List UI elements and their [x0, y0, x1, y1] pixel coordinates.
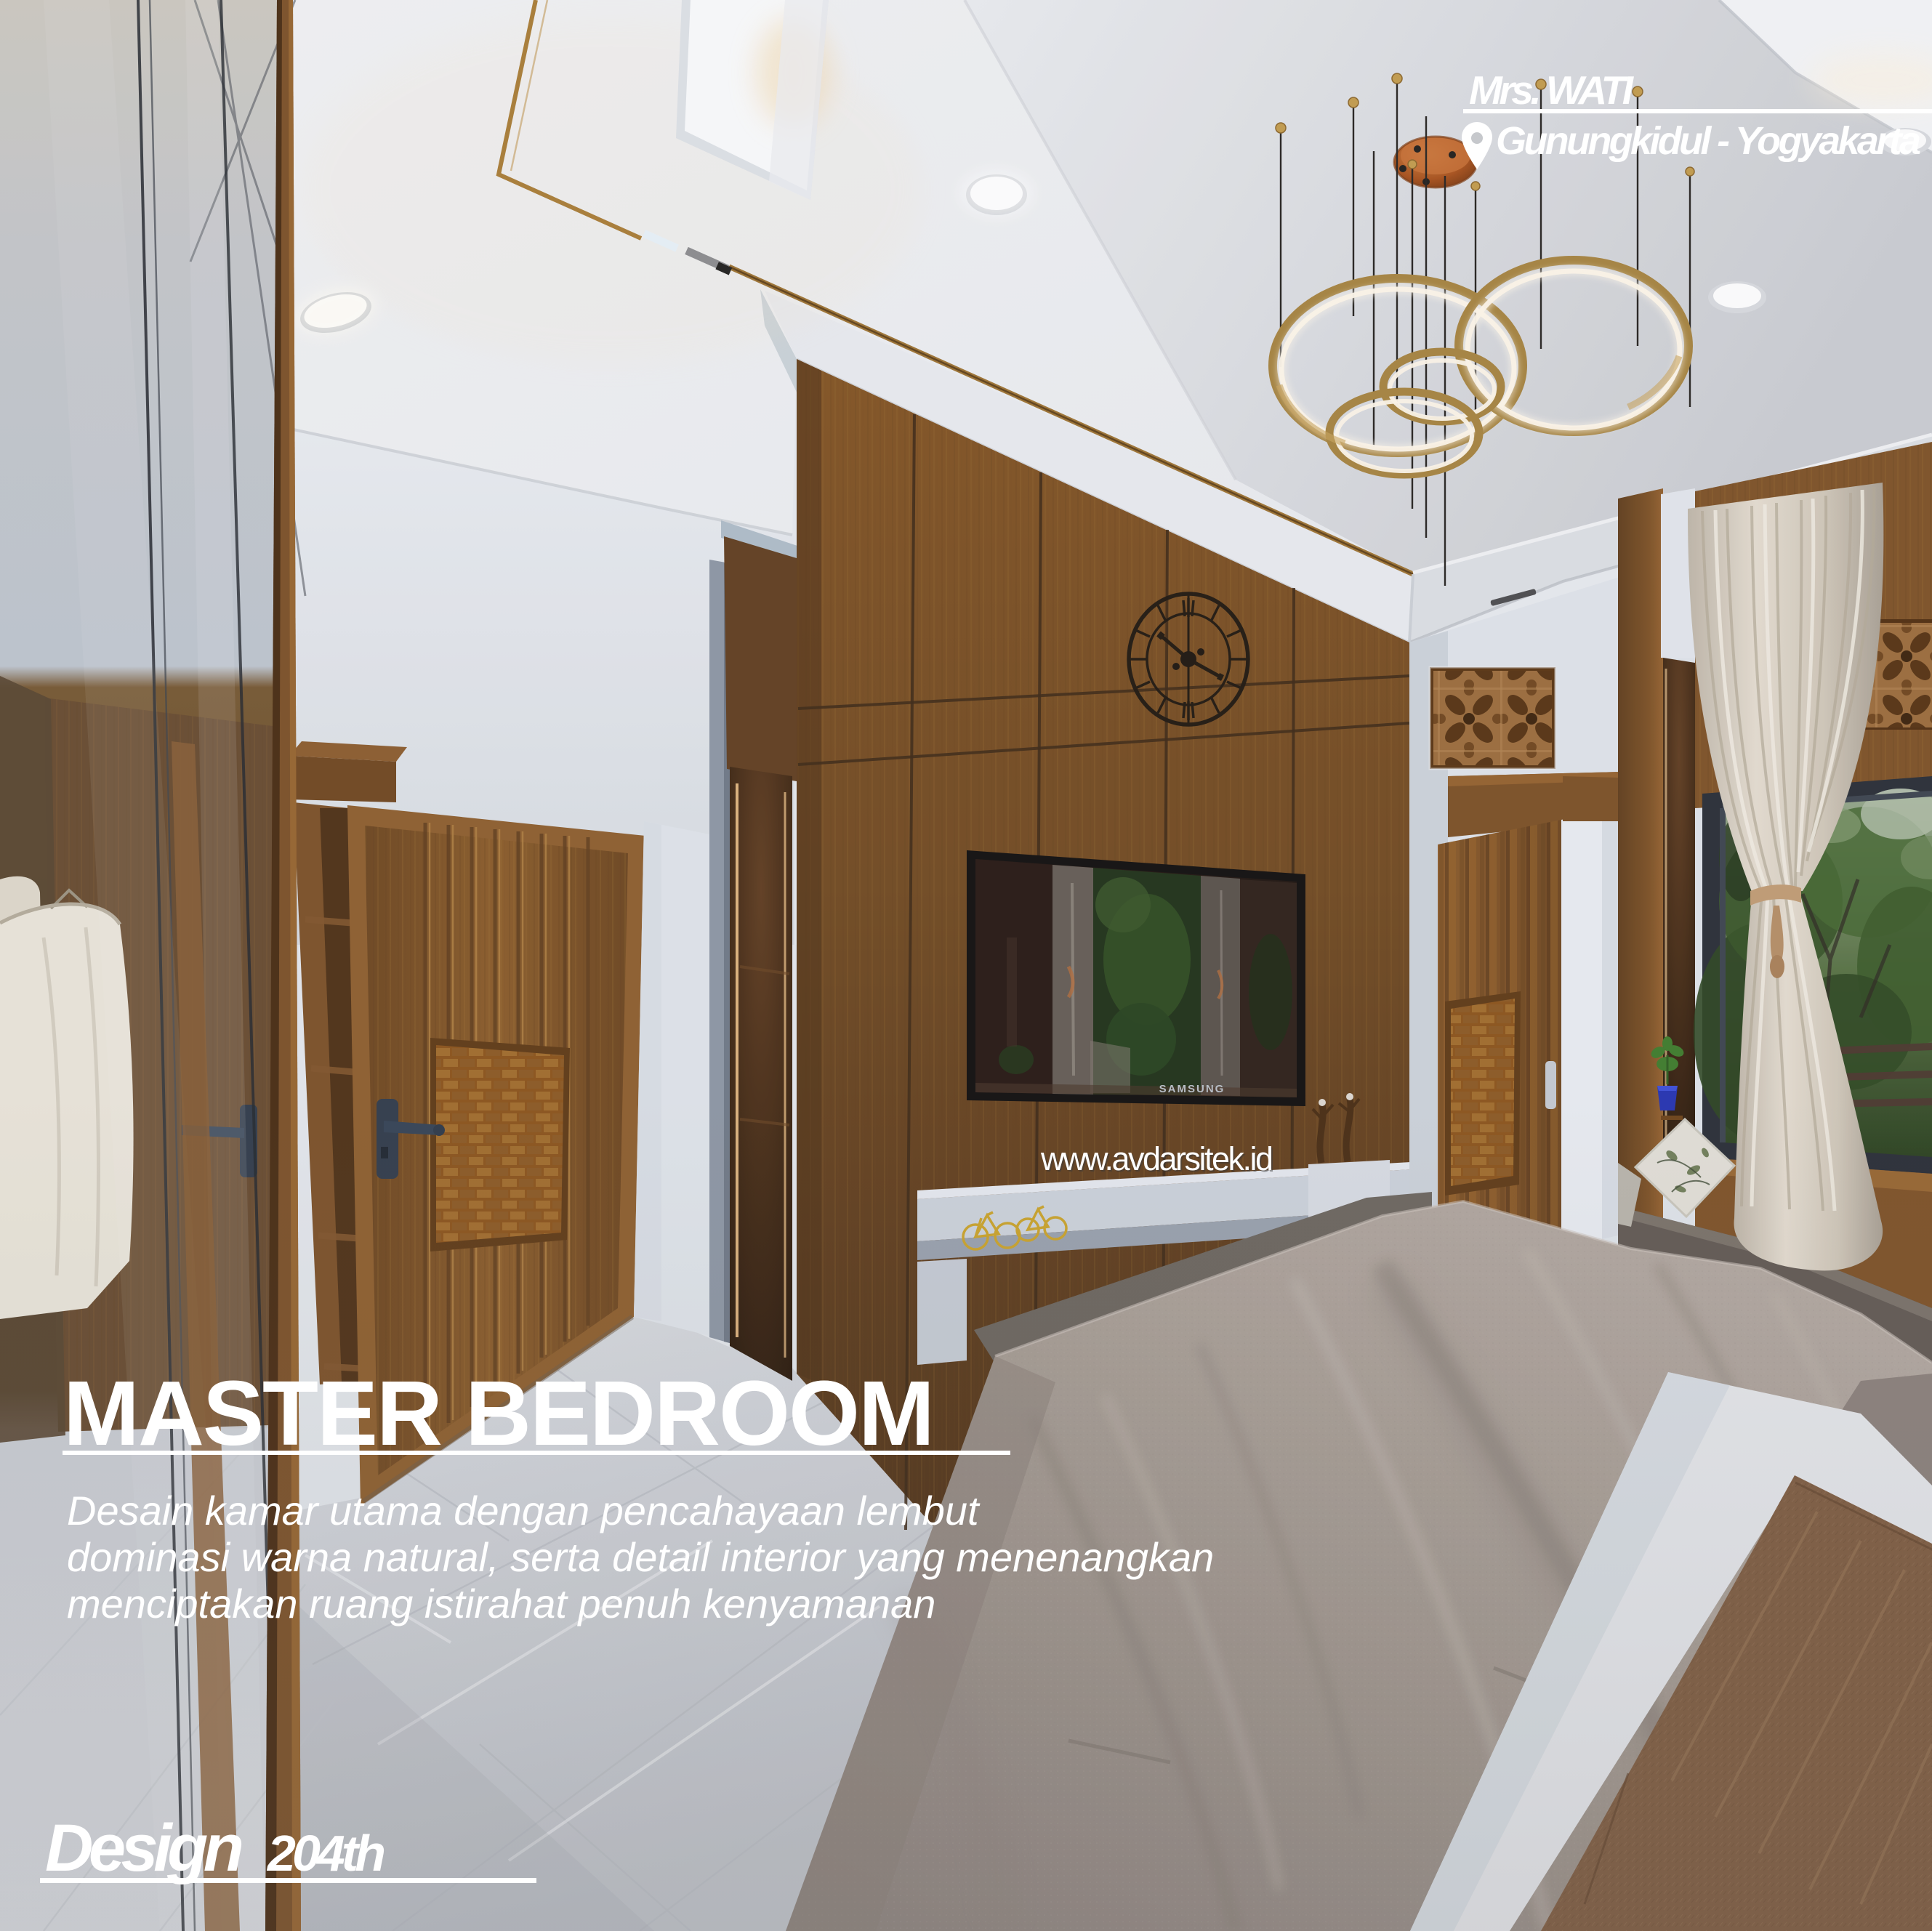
svg-text:Gunungkidul - Yogyakarta: Gunungkidul - Yogyakarta	[1496, 119, 1921, 163]
svg-text:Mrs. WATI: Mrs. WATI	[1469, 68, 1635, 113]
svg-text:Design: Design	[45, 1811, 244, 1885]
svg-text:www.avdarsitek.id: www.avdarsitek.id	[1040, 1140, 1273, 1177]
svg-text:menciptakan ruang istirahat pe: menciptakan ruang istirahat penuh kenyam…	[67, 1581, 935, 1626]
svg-text:204th: 204th	[266, 1825, 386, 1882]
svg-text:Desain kamar utama dengan penc: Desain kamar utama dengan pencahayaan le…	[67, 1488, 981, 1533]
svg-text:dominasi warna natural, serta: dominasi warna natural, serta detail int…	[67, 1534, 1214, 1580]
svg-text:MASTER BEDROOM: MASTER BEDROOM	[63, 1362, 935, 1464]
